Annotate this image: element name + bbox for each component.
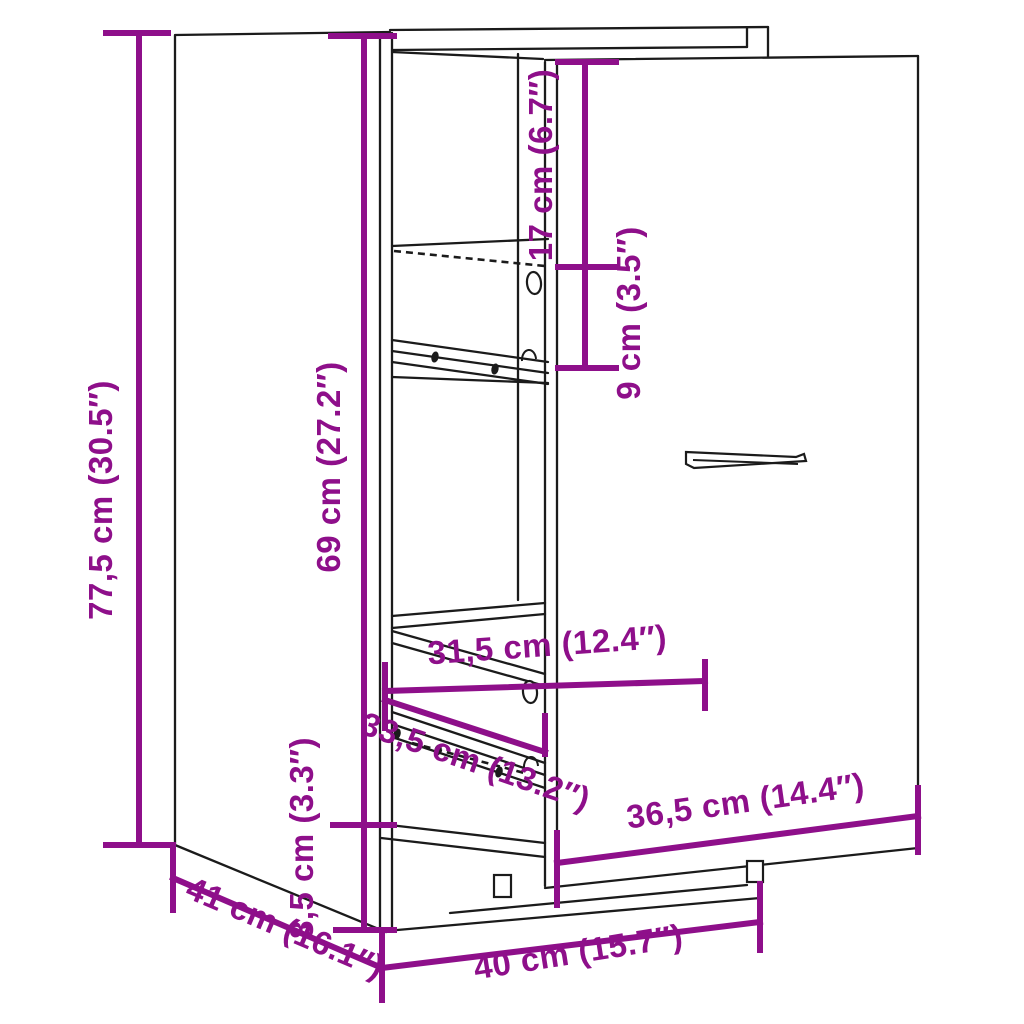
base-bracket: [494, 875, 511, 897]
cabinet-diagram-svg: 77,5 cm (30.5″) 69 cm (27.2″) 17 cm (6.7…: [0, 0, 1024, 1024]
screw-1: [430, 351, 439, 363]
shelf-2-edge-top: [392, 603, 545, 616]
label-interior-width: 31,5 cm (12.4″): [426, 618, 668, 672]
label-width: 40 cm (15.7″): [471, 917, 685, 987]
door-bottom-edge: [545, 848, 918, 888]
side-hole-1: [526, 271, 542, 294]
door-bottom-bracket: [747, 861, 763, 882]
dimension-lines: [106, 33, 918, 1000]
upper-rail-2: [392, 351, 548, 373]
top-panel-upper-edge: [390, 27, 768, 30]
dim-line-door-width: [557, 816, 918, 863]
label-interior-height: 69 cm (27.2″): [310, 361, 347, 572]
interior-ceiling: [392, 52, 543, 59]
label-shelf-spacing: 9 cm (3.5″): [610, 226, 647, 400]
top-panel-lower-edge: [392, 47, 747, 50]
dimension-diagram: 77,5 cm (30.5″) 69 cm (27.2″) 17 cm (6.7…: [0, 0, 1024, 1024]
left-panel-outline: [175, 32, 390, 845]
label-total-height: 77,5 cm (30.5″): [82, 380, 119, 620]
label-top-clearance: 17 cm (6.7″): [522, 69, 559, 261]
shelf-2-edge-bottom: [392, 614, 545, 628]
